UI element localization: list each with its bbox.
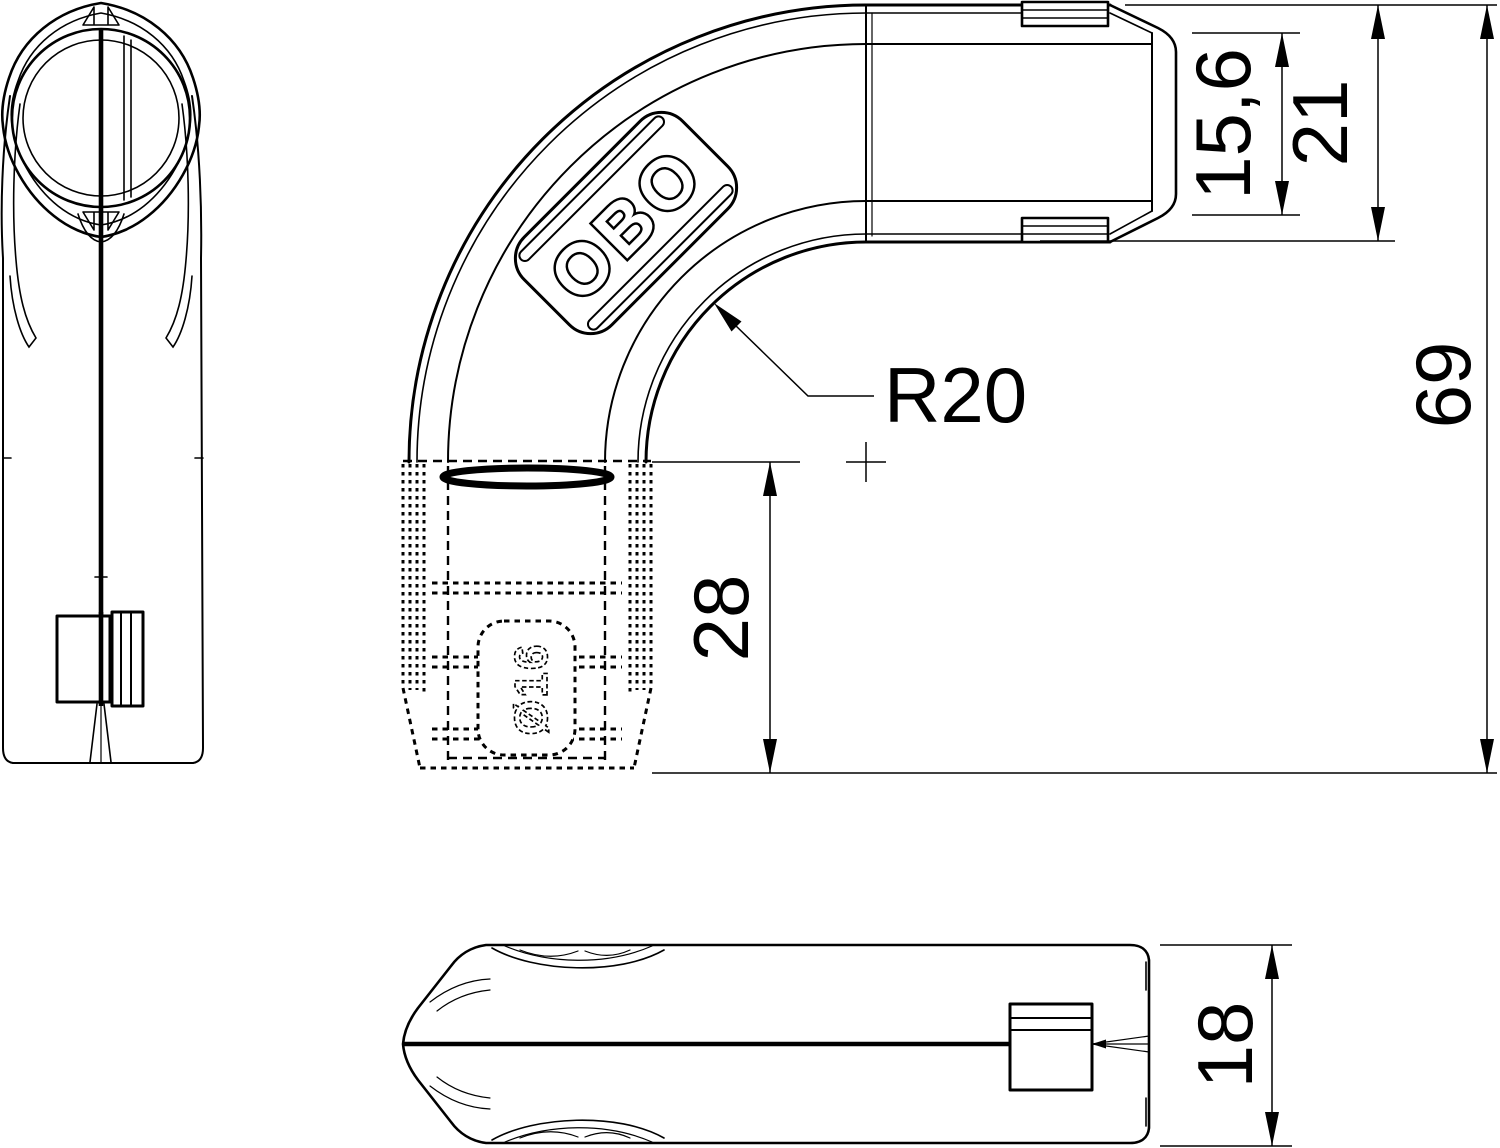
dim-body-width: 18 — [1160, 945, 1292, 1146]
dim-total-height-label: 69 — [1399, 342, 1487, 429]
dim-bend-radius: R20 — [714, 303, 1027, 482]
latch-detail — [1010, 1004, 1092, 1090]
obo-logo-badge: OBO — [503, 100, 749, 346]
diameter-marking-text: Ø16 — [505, 643, 557, 736]
dim-end-inner-height-label: 15,6 — [1179, 48, 1267, 200]
radius-center-mark — [846, 442, 886, 482]
top-view — [403, 945, 1149, 1143]
latch-detail — [57, 612, 143, 706]
dim-bend-radius-label: R20 — [884, 351, 1027, 439]
dim-end-outer-height-label: 21 — [1276, 80, 1364, 167]
dim-body-width-label: 18 — [1181, 1002, 1269, 1089]
dimensions: R20 28 15,6 21 — [652, 5, 1497, 1146]
latch-tab-top — [1022, 2, 1108, 26]
socket-mouth-ellipse — [443, 468, 611, 486]
dim-total-height: 69 — [652, 5, 1497, 773]
dim-end-outer-height: 21 — [1040, 5, 1497, 241]
dim-socket-depth: 28 — [652, 462, 800, 773]
main-view: OBO — [403, 2, 1176, 768]
drawing-canvas: OBO — [0, 0, 1500, 1148]
latch-tab-bottom — [1022, 218, 1108, 242]
socket-end-cap — [1110, 5, 1176, 242]
dim-socket-depth-label: 28 — [677, 575, 765, 662]
end-view — [2, 3, 203, 763]
socket-hidden-lines: Ø16 — [403, 461, 651, 768]
